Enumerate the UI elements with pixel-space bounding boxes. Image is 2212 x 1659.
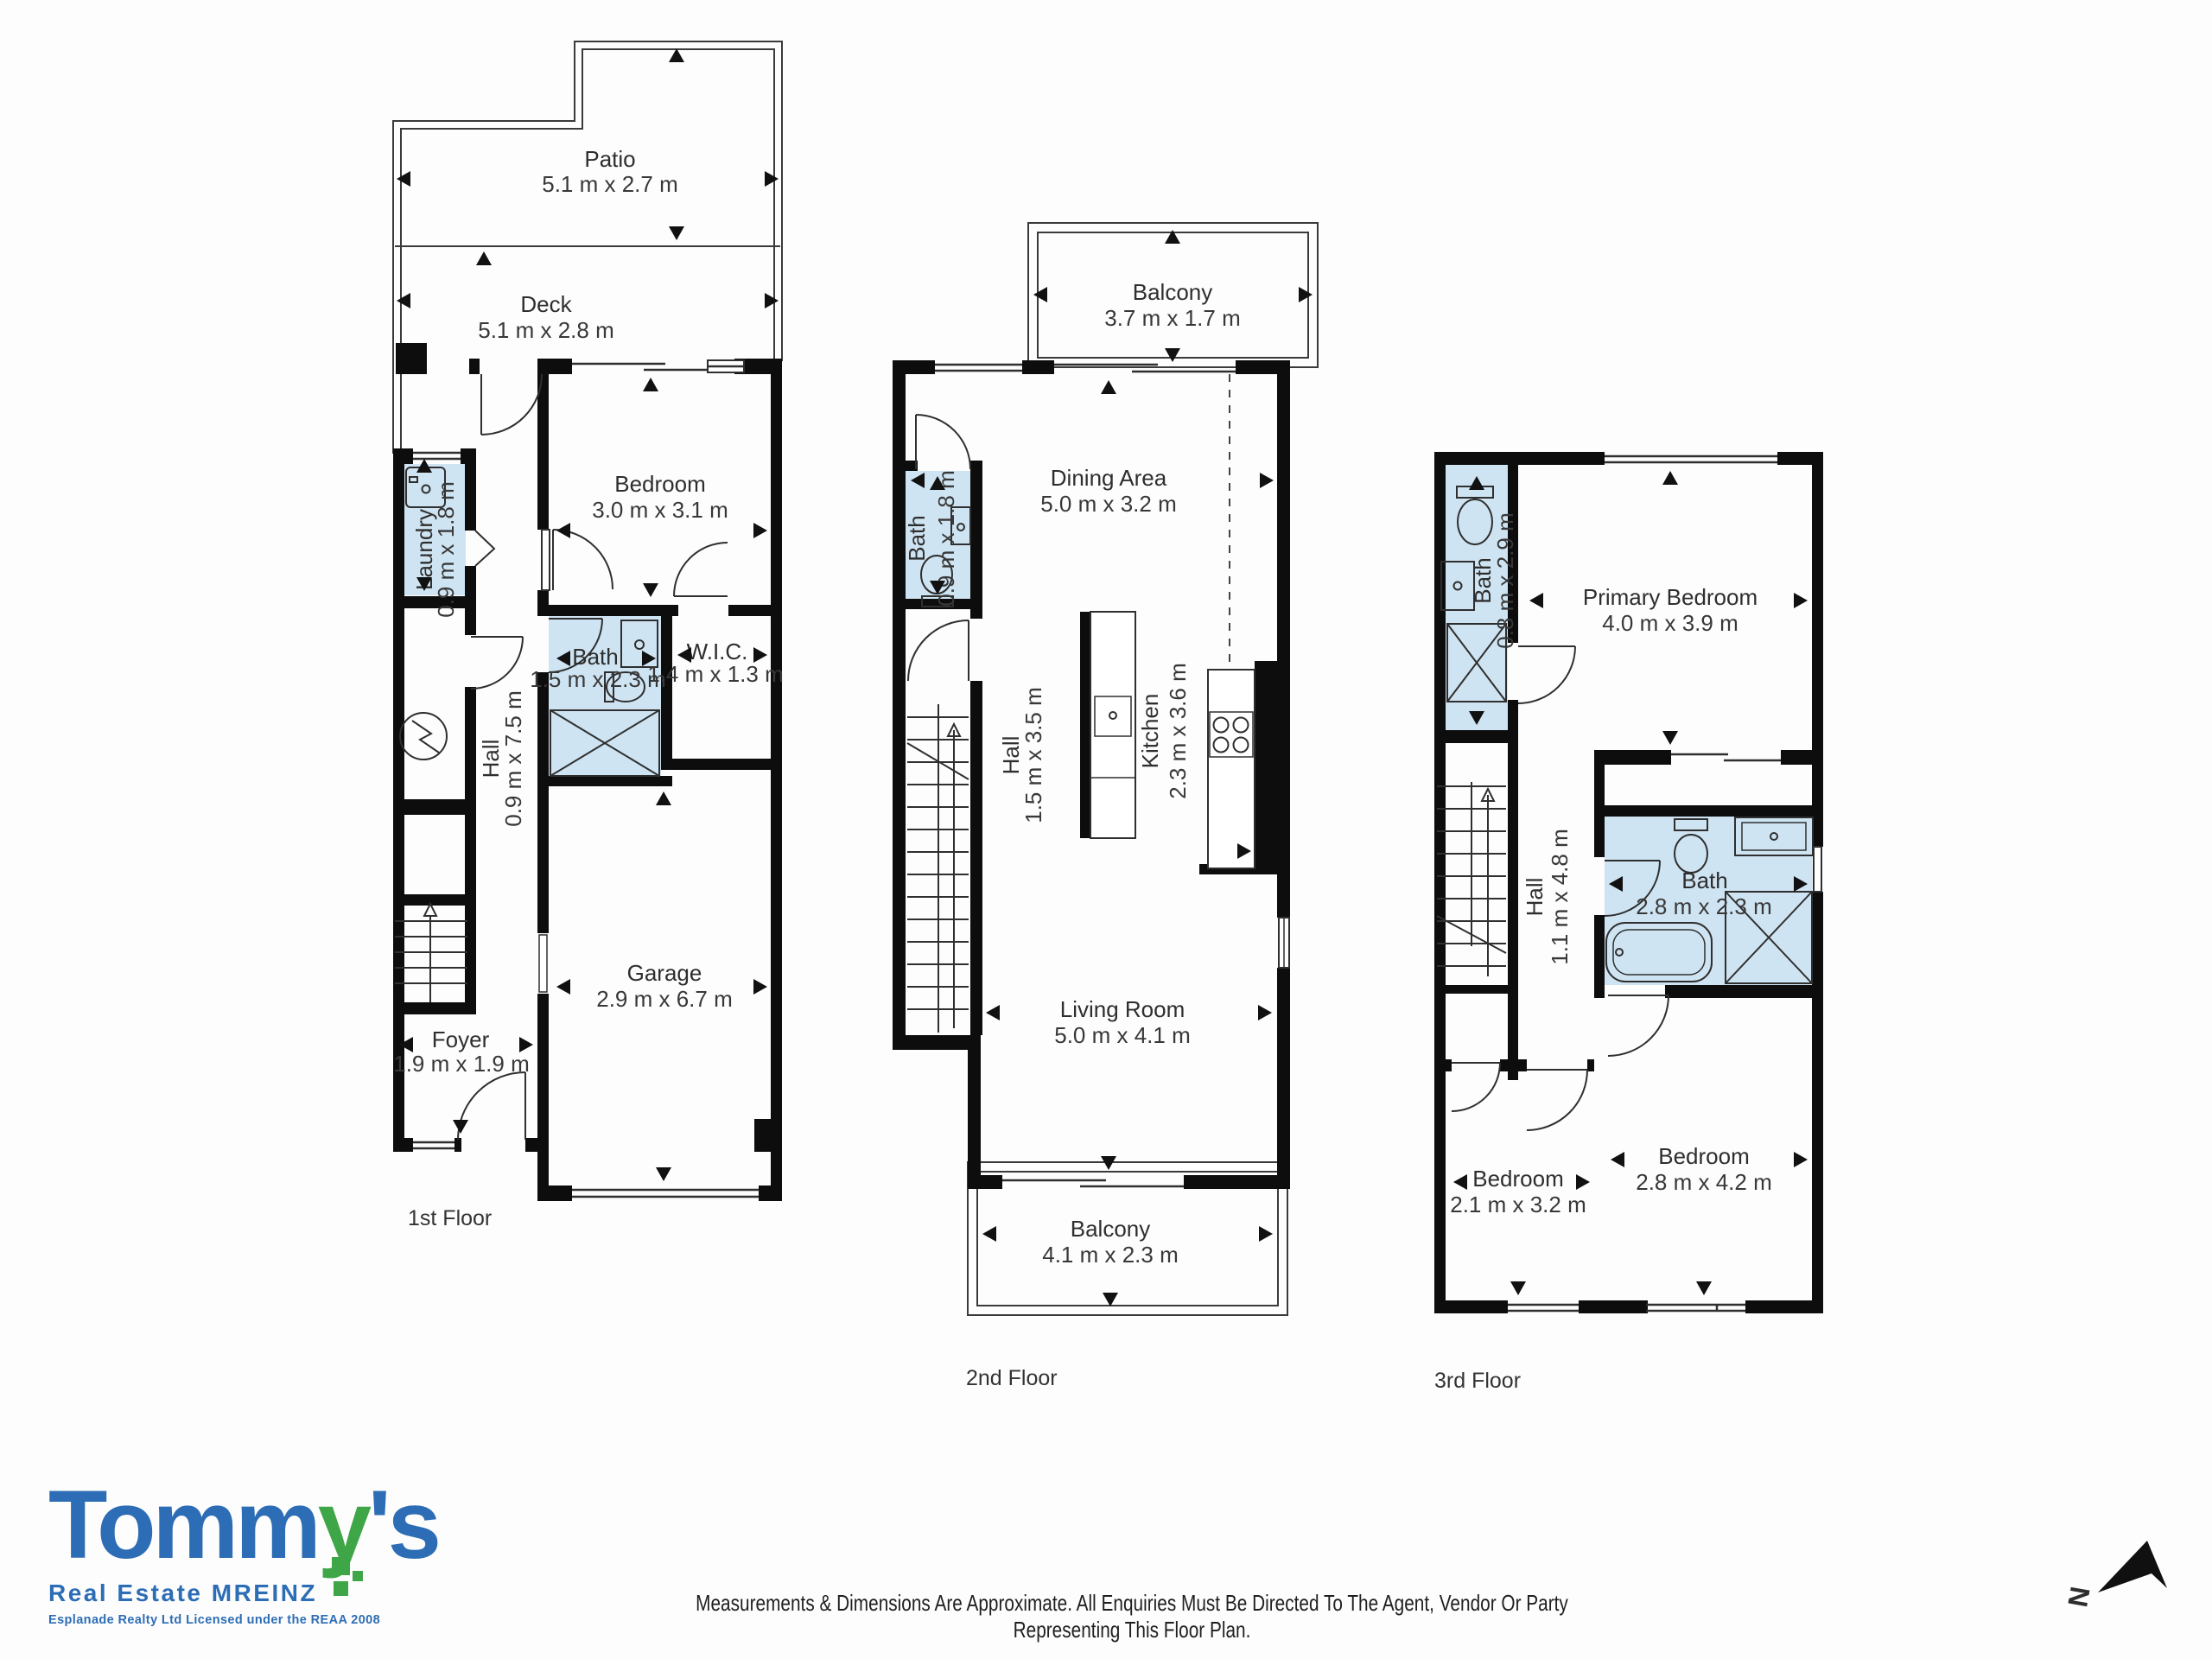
room-label-balcony-bottom: Balcony xyxy=(1071,1216,1151,1242)
staircase-3rd xyxy=(1437,782,1506,976)
room-label-bedroom-small: Bedroom xyxy=(1472,1166,1564,1192)
floor-label-3rd: 3rd Floor xyxy=(1434,1369,1521,1393)
room-label-deck: Deck xyxy=(520,291,572,317)
room-dims-bath3-small: 0.8 m x 2.9 m xyxy=(1492,512,1518,649)
room-dims-deck: 5.1 m x 2.8 m xyxy=(478,317,614,343)
room-dims-dining: 5.0 m x 3.2 m xyxy=(1040,491,1177,517)
room-dims-living: 5.0 m x 4.1 m xyxy=(1054,1022,1191,1048)
room-dims-bedroom-small: 2.1 m x 3.2 m xyxy=(1450,1192,1586,1217)
room-label-kitchen: Kitchen xyxy=(1137,694,1163,769)
room-dims-balcony-bottom: 4.1 m x 2.3 m xyxy=(1042,1242,1179,1268)
room-dims-hall1: 0.9 m x 7.5 m xyxy=(500,690,526,827)
room-label-living: Living Room xyxy=(1060,996,1185,1022)
patio-outline xyxy=(393,41,782,454)
room-label-patio: Patio xyxy=(584,146,635,172)
electrical-panel-icon xyxy=(400,713,447,760)
room-dims-bath1: 1.5 m x 2.3 m xyxy=(530,666,666,692)
room-dims-bedroom1: 3.0 m x 3.1 m xyxy=(592,497,728,523)
floor-label-2nd: 2nd Floor xyxy=(966,1366,1058,1390)
staircase-2nd xyxy=(907,704,969,1033)
room-dims-hall2: 1.5 m x 3.5 m xyxy=(1020,687,1046,823)
floorplan-page: Patio 5.1 m x 2.7 m Deck 5.1 m x 2.8 m B… xyxy=(0,0,2212,1659)
room-dims-bath3: 2.8 m x 2.3 m xyxy=(1636,893,1772,919)
room-dims-laundry: 0.9 m x 1.8 m xyxy=(433,481,459,618)
brand-word-start: Tomm xyxy=(48,1471,318,1579)
room-dims-garage: 2.9 m x 6.7 m xyxy=(596,986,733,1012)
kitchen-island xyxy=(1090,612,1135,838)
room-dims-balcony-top: 3.7 m x 1.7 m xyxy=(1104,305,1241,331)
brand-wordmark: Tommy's xyxy=(48,1474,480,1576)
floor-label-1st: 1st Floor xyxy=(408,1206,492,1230)
third-floor-plan: Bath 0.8 m x 2.9 m Primary Bedroom 4.0 m… xyxy=(1434,452,1823,1393)
kitchen-counter xyxy=(1208,670,1255,868)
room-dims-hall3: 1.1 m x 4.8 m xyxy=(1547,829,1573,965)
brand-tagline: Real Estate MREINZ xyxy=(48,1580,480,1607)
second-floor-plan: Balcony 3.7 m x 1.7 m Dining Area 5.0 m … xyxy=(893,223,1318,1390)
first-floor-plan: Patio 5.1 m x 2.7 m Deck 5.1 m x 2.8 m B… xyxy=(393,41,784,1230)
room-label-foyer: Foyer xyxy=(432,1027,490,1052)
staircase-1st xyxy=(395,904,467,1002)
key-tooth-icon xyxy=(353,1571,363,1581)
room-dims-patio: 5.1 m x 2.7 m xyxy=(542,171,678,197)
patio-outline-inner xyxy=(401,49,774,454)
room-dims-bedroom-large: 2.8 m x 4.2 m xyxy=(1636,1169,1772,1195)
room-label-bath3: Bath xyxy=(1681,868,1728,893)
room-dims-foyer: 1.9 m x 1.9 m xyxy=(393,1051,530,1077)
room-dims-wic: 1.4 m x 1.3 m xyxy=(647,661,784,687)
room-label-balcony-top: Balcony xyxy=(1133,279,1213,305)
room-label-primary-bedroom: Primary Bedroom xyxy=(1583,584,1758,610)
room-label-bedroom-large: Bedroom xyxy=(1658,1143,1750,1169)
brand-logo: Tommy's Real Estate MREINZ Esplanade Rea… xyxy=(48,1474,480,1627)
floorplan-svg: Patio 5.1 m x 2.7 m Deck 5.1 m x 2.8 m B… xyxy=(0,0,2212,1659)
room-label-garage: Garage xyxy=(627,960,702,986)
brand-license: Esplanade Realty Ltd Licensed under the … xyxy=(48,1613,480,1627)
brand-word-end: 's xyxy=(368,1471,438,1579)
north-arrow-icon: N xyxy=(2062,1541,2167,1610)
disclaimer-text: Measurements & Dimensions Are Approximat… xyxy=(648,1590,1616,1643)
room-dims-primary-bedroom: 4.0 m x 3.9 m xyxy=(1602,610,1738,636)
room-dims-kitchen: 2.3 m x 3.6 m xyxy=(1165,663,1191,799)
room-label-dining: Dining Area xyxy=(1051,465,1167,491)
key-tooth-icon xyxy=(334,1581,348,1596)
key-tooth-icon xyxy=(332,1557,350,1575)
room-label-bedroom1: Bedroom xyxy=(614,471,706,497)
room-label-bath2: Bath xyxy=(904,515,930,562)
north-label: N xyxy=(2062,1584,2095,1609)
room-label-hall3: Hall xyxy=(1522,878,1548,917)
